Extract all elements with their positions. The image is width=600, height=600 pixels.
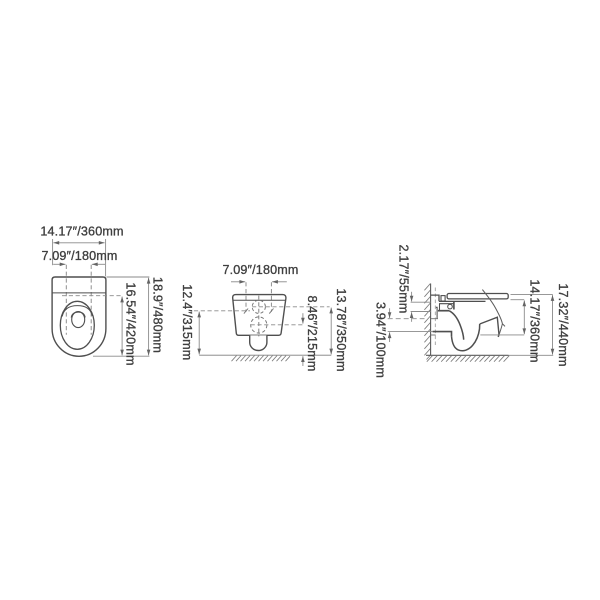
svg-text:18.9″/480mm: 18.9″/480mm: [151, 277, 165, 353]
svg-text:8.46″/215mm: 8.46″/215mm: [305, 295, 319, 371]
svg-text:7.09″/180mm: 7.09″/180mm: [41, 249, 117, 263]
svg-text:12.4″/315mm: 12.4″/315mm: [180, 284, 194, 360]
svg-text:2.17″/55mm: 2.17″/55mm: [396, 245, 410, 314]
svg-text:14.17″/360mm: 14.17″/360mm: [527, 279, 541, 362]
svg-text:14.17″/360mm: 14.17″/360mm: [40, 225, 123, 239]
svg-text:7.09″/180mm: 7.09″/180mm: [222, 263, 298, 277]
svg-text:17.32″/440mm: 17.32″/440mm: [556, 283, 570, 366]
svg-text:13.78″/350mm: 13.78″/350mm: [334, 288, 348, 371]
svg-text:3.94″/100mm: 3.94″/100mm: [374, 302, 388, 378]
svg-text:16.54″/420mm: 16.54″/420mm: [123, 282, 137, 365]
